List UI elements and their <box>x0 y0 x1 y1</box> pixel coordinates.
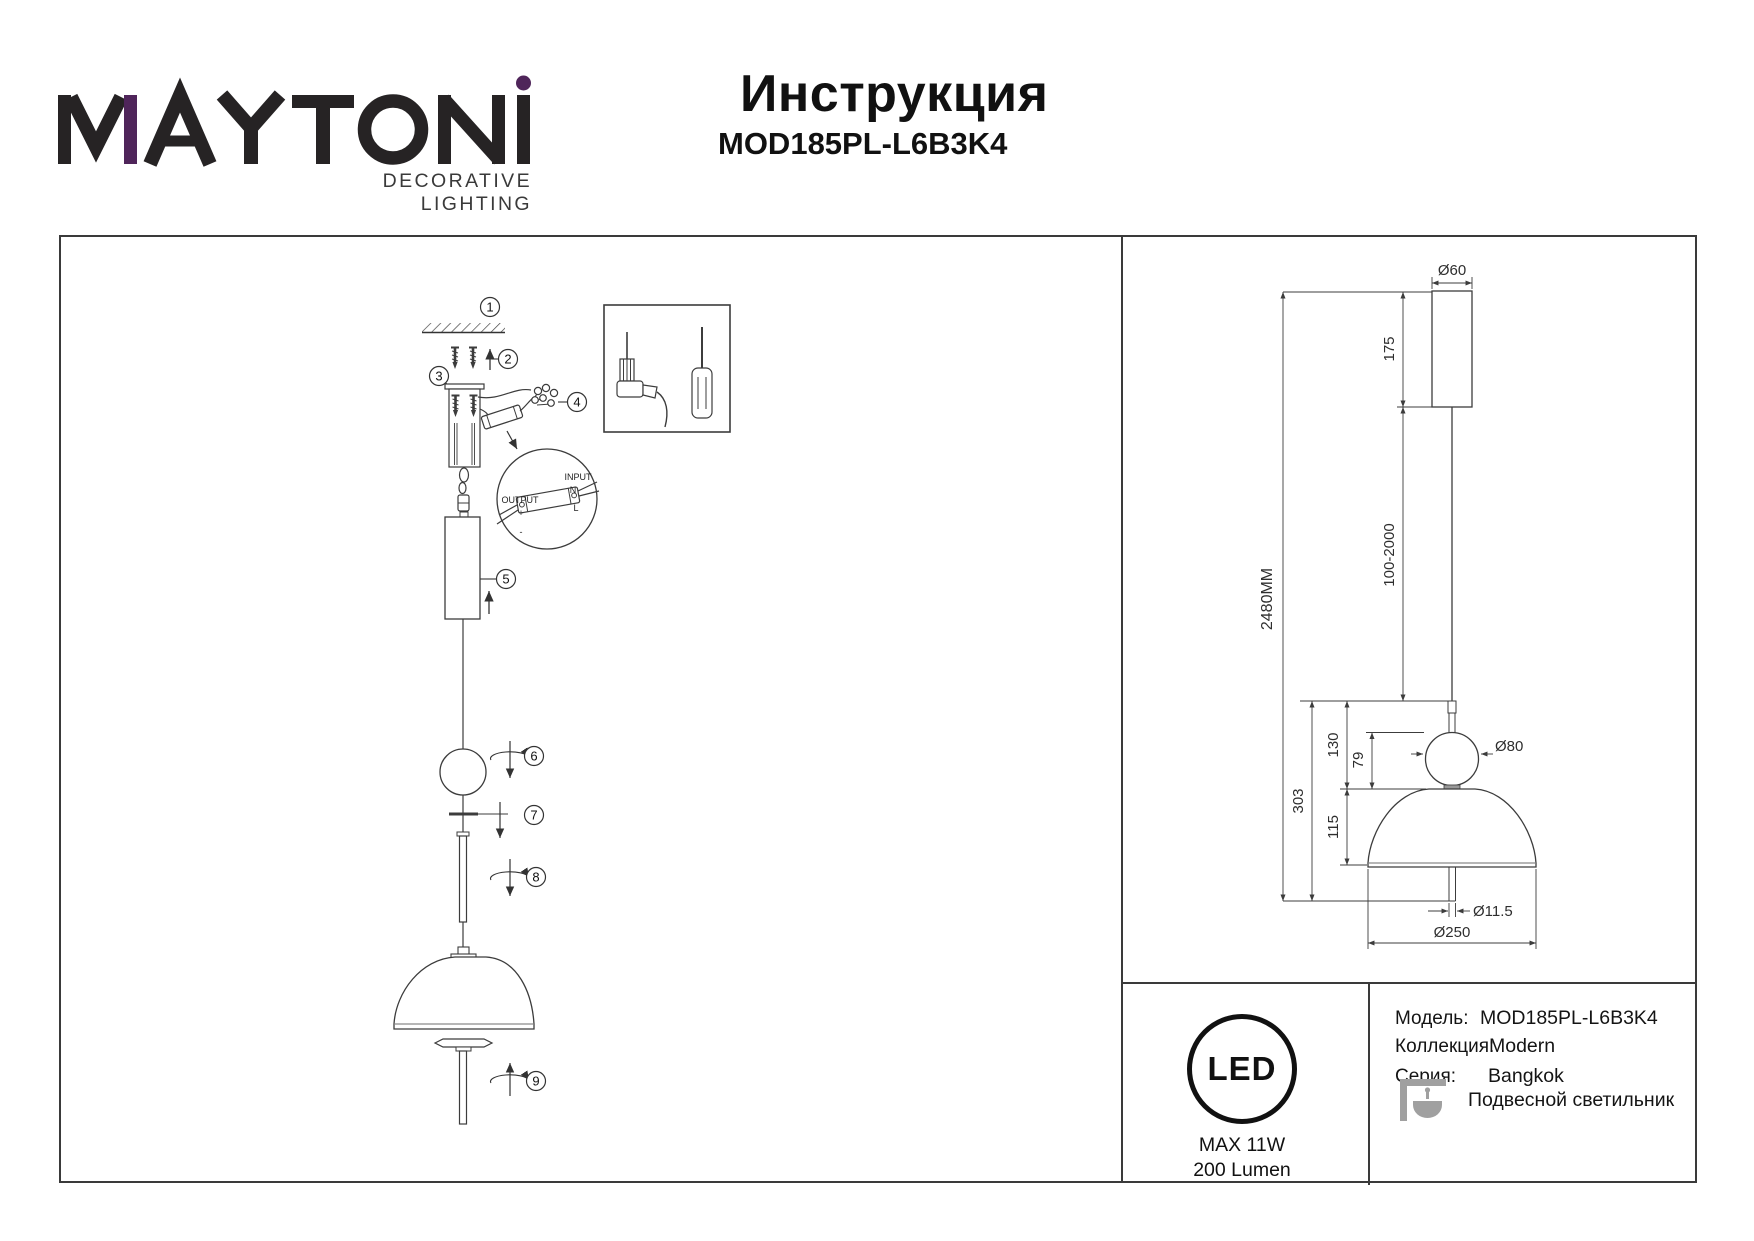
fixture-height-label: 303 <box>1290 788 1307 813</box>
output-minus-label: - <box>520 527 523 537</box>
step-8-number: 8 <box>532 870 539 885</box>
logo-letter-n-diag <box>444 99 499 160</box>
total-height-label: 2480MM <box>1259 568 1276 630</box>
input-l-label: L <box>573 503 578 513</box>
collection-row-value: Modern <box>1489 1035 1555 1058</box>
shade-height-label: 115 <box>1325 815 1342 839</box>
step-6-marker: 6 <box>491 741 544 778</box>
model-row-label: Модель: <box>1395 1008 1468 1030</box>
pendant-rod-lower <box>460 1051 467 1124</box>
ball-diameter-label: Ø80 <box>1495 738 1523 755</box>
step-5-marker: 5 <box>480 570 516 615</box>
step-1-number: 1 <box>486 300 493 315</box>
tools-box <box>604 305 730 432</box>
logo-letter-m-accent <box>124 95 137 164</box>
shade-diameter-label: Ø250 <box>1434 924 1471 941</box>
page-title: Инструкция <box>740 64 1048 124</box>
collection-row-label: Коллекция: <box>1395 1036 1494 1058</box>
suspension-hook <box>458 468 469 511</box>
step-5-number: 5 <box>502 572 509 587</box>
led-badge-text: LED <box>1208 1050 1277 1088</box>
detail-leader-arrow <box>507 431 517 449</box>
step-7-number: 7 <box>530 808 537 823</box>
step-6-number: 6 <box>530 749 537 764</box>
model-row-value: MOD185PL-L6B3K4 <box>1480 1007 1658 1030</box>
step-3-number: 3 <box>435 369 442 384</box>
stem-diameter-label: Ø11.5 <box>1473 903 1513 920</box>
step-4-marker: 4 <box>558 393 587 412</box>
step-8-marker: 8 <box>491 859 546 896</box>
suspension-length-label: 100-2000 <box>1381 523 1398 586</box>
step-9-number: 9 <box>532 1074 539 1089</box>
assembly-diagram: 1 2 3 <box>61 237 1121 1181</box>
input-n-label: N <box>570 485 577 495</box>
luminous-flux-label: 200 Lumen <box>1152 1159 1332 1182</box>
wire-nuts <box>532 384 558 406</box>
step-2-number: 2 <box>504 352 511 367</box>
dim-ball-section: 79 <box>1350 733 1372 790</box>
canopy-diameter-label: Ø60 <box>1438 262 1466 279</box>
ceiling-hatch <box>422 323 505 333</box>
dimensions-panel: Ø60 175 100-2000 2480MM Ø80 <box>1121 235 1697 1183</box>
canopy-height-label: 175 <box>1381 336 1398 361</box>
spec-table-divider <box>1368 982 1370 1185</box>
canopy-cylinder <box>445 512 480 619</box>
logo-letter-m-v <box>71 97 121 147</box>
step-1-marker: 1 <box>481 298 500 317</box>
ceiling-anchors <box>451 347 499 370</box>
step-9-marker: 9 <box>490 1063 545 1096</box>
pendant-lamp-icon <box>1400 1079 1456 1125</box>
dim-canopy-diameter: Ø60 <box>1432 262 1472 289</box>
maytoni-logo <box>56 72 532 172</box>
step-4-number: 4 <box>573 395 580 410</box>
max-power-label: MAX 11W <box>1152 1134 1332 1157</box>
led-badge: LED <box>1187 1014 1297 1124</box>
spec-table-top-border <box>1123 982 1695 984</box>
logo-letter-y <box>222 95 280 128</box>
pendant-rod-upper <box>457 832 469 922</box>
step-2-marker: 2 <box>499 350 518 369</box>
series-row-value: Bangkok <box>1488 1065 1564 1088</box>
assembly-panel: 1 2 3 <box>59 235 1123 1183</box>
logo-letter-y-stem <box>244 126 258 164</box>
dim-upper-section: 130 115 <box>1325 701 1347 865</box>
logo-letter-t-stem <box>316 95 330 164</box>
logo-letter-o <box>365 101 422 158</box>
dimensions-drawing: Ø60 175 100-2000 2480MM Ø80 <box>1123 237 1695 982</box>
logo-letter-i <box>517 95 530 164</box>
brand-tagline: DECORATIVE LIGHTING <box>280 170 532 216</box>
lamp-shade <box>394 947 534 1029</box>
upper-section-label: 130 <box>1325 732 1342 757</box>
diffuser-disc <box>435 1039 492 1051</box>
driver-and-wiring <box>478 390 533 430</box>
decorative-ball <box>440 749 486 795</box>
dim-canopy-height: 175 <box>1283 292 1432 407</box>
fixture-type-label: Подвесной светильник <box>1468 1089 1674 1112</box>
ball-section-label: 79 <box>1350 752 1367 769</box>
dim-suspension-length: 100-2000 <box>1381 407 1403 701</box>
dim-stem-diameter: Ø11.5 <box>1428 903 1513 920</box>
logo-letter-i-dot <box>516 76 531 91</box>
input-label: INPUT <box>565 472 593 482</box>
page-model-number: MOD185PL-L6B3K4 <box>718 126 1007 162</box>
output-label: OUTPUT <box>502 495 540 505</box>
step-7-marker: 7 <box>500 802 544 838</box>
fixture-outline <box>1368 291 1536 901</box>
instruction-sheet: DECORATIVE LIGHTING Инструкция MOD185PL-… <box>0 0 1754 1241</box>
wiring-detail-circle: INPUT N L OUTPUT + - <box>497 449 599 549</box>
logo-letter-a <box>150 95 210 164</box>
output-plus-label: + <box>518 508 523 518</box>
dim-fixture-height: 303 <box>1290 701 1312 901</box>
